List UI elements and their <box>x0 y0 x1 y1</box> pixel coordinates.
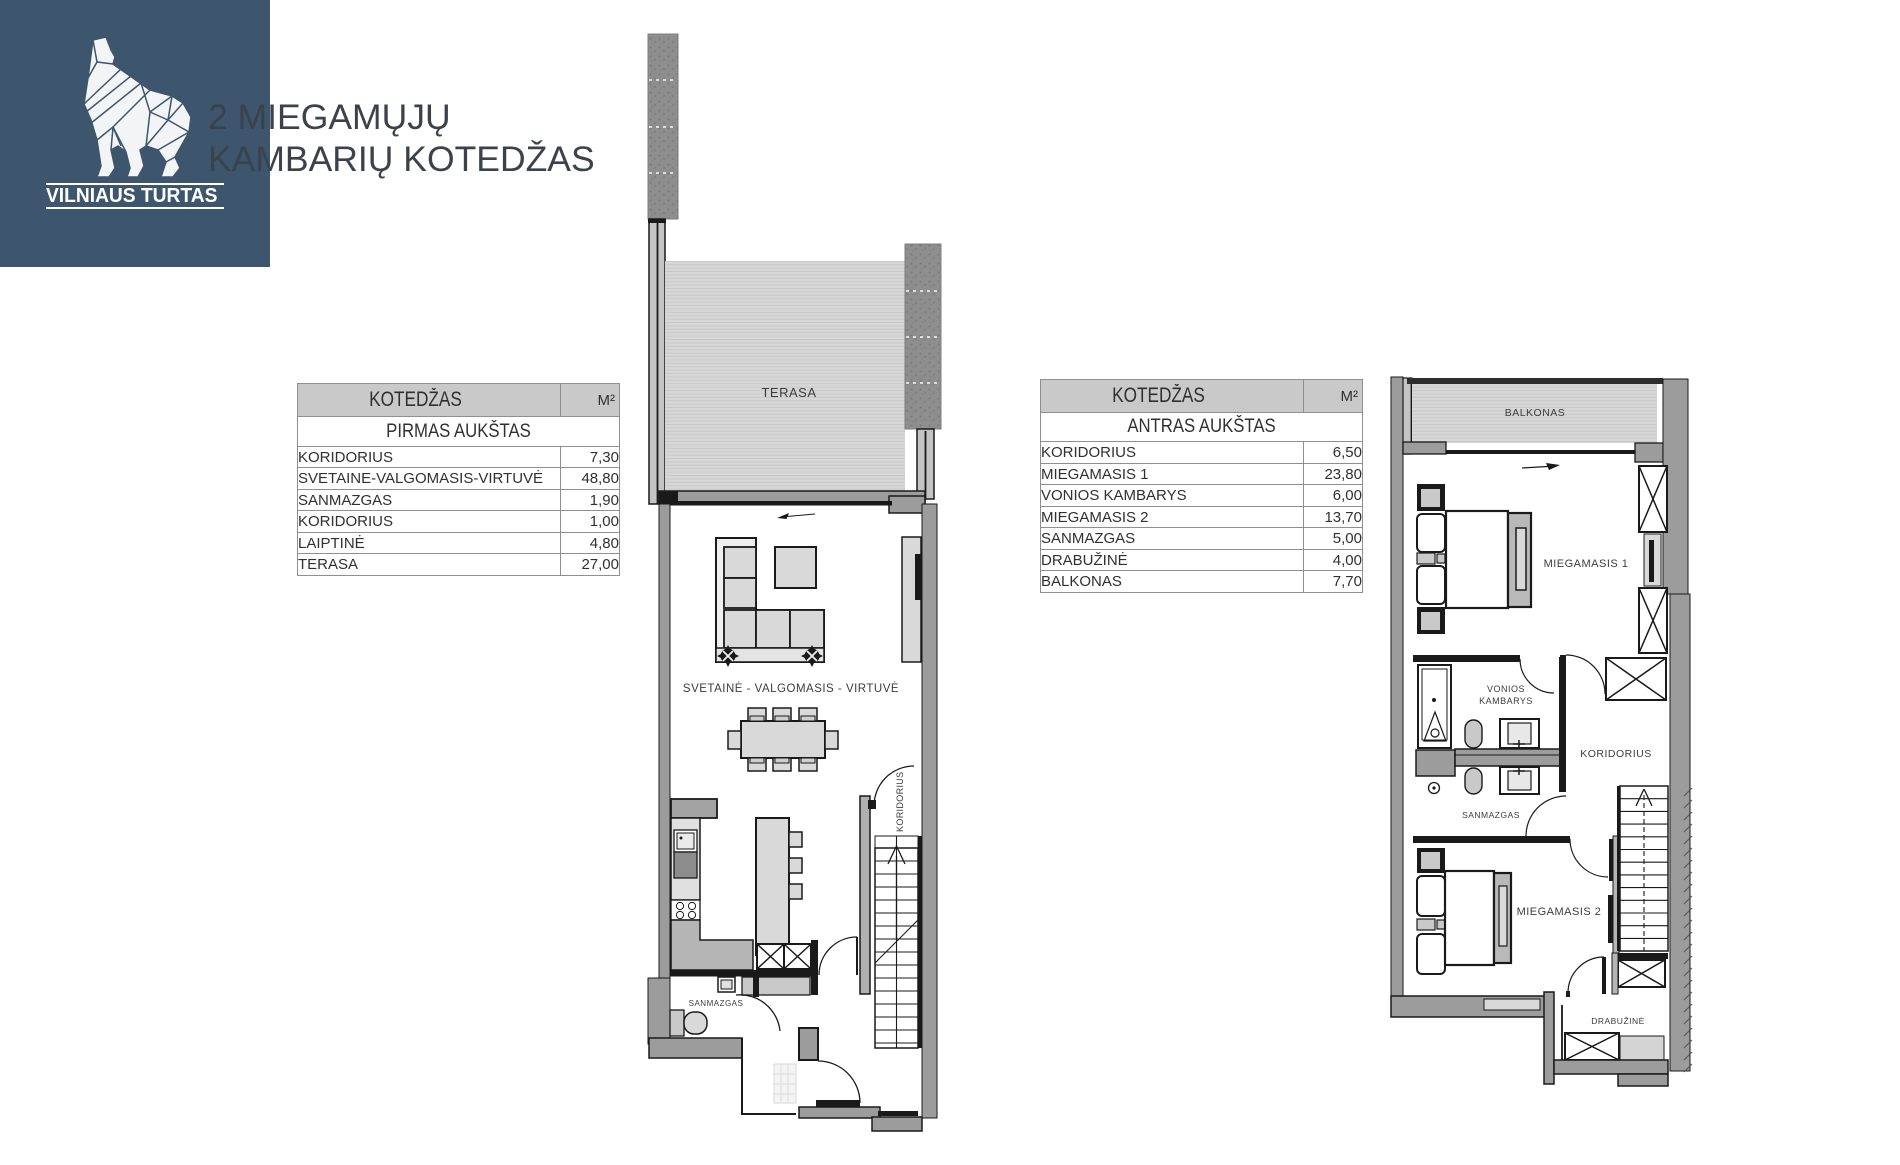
svg-text:SANMAZGAS: SANMAZGAS <box>1462 810 1520 820</box>
svg-text:BALKONAS: BALKONAS <box>1505 407 1566 419</box>
svg-text:DRABUŽINĖ: DRABUŽINĖ <box>1591 1016 1645 1026</box>
svg-text:MIEGAMASIS 2: MIEGAMASIS 2 <box>1517 906 1602 918</box>
svg-text:TERASA: TERASA <box>761 385 816 400</box>
svg-text:KAMBARYS: KAMBARYS <box>1479 696 1533 706</box>
svg-text:MIEGAMASIS 1: MIEGAMASIS 1 <box>1544 558 1629 570</box>
svg-text:KORIDORIUS: KORIDORIUS <box>895 771 905 832</box>
svg-text:KORIDORIUS: KORIDORIUS <box>1580 748 1652 760</box>
svg-text:SANMAZGAS: SANMAZGAS <box>689 999 744 1008</box>
svg-text:VONIOS: VONIOS <box>1487 684 1525 694</box>
svg-text:SVETAINĖ - VALGOMASIS - VIRTUV: SVETAINĖ - VALGOMASIS - VIRTUVĖ <box>683 682 899 695</box>
